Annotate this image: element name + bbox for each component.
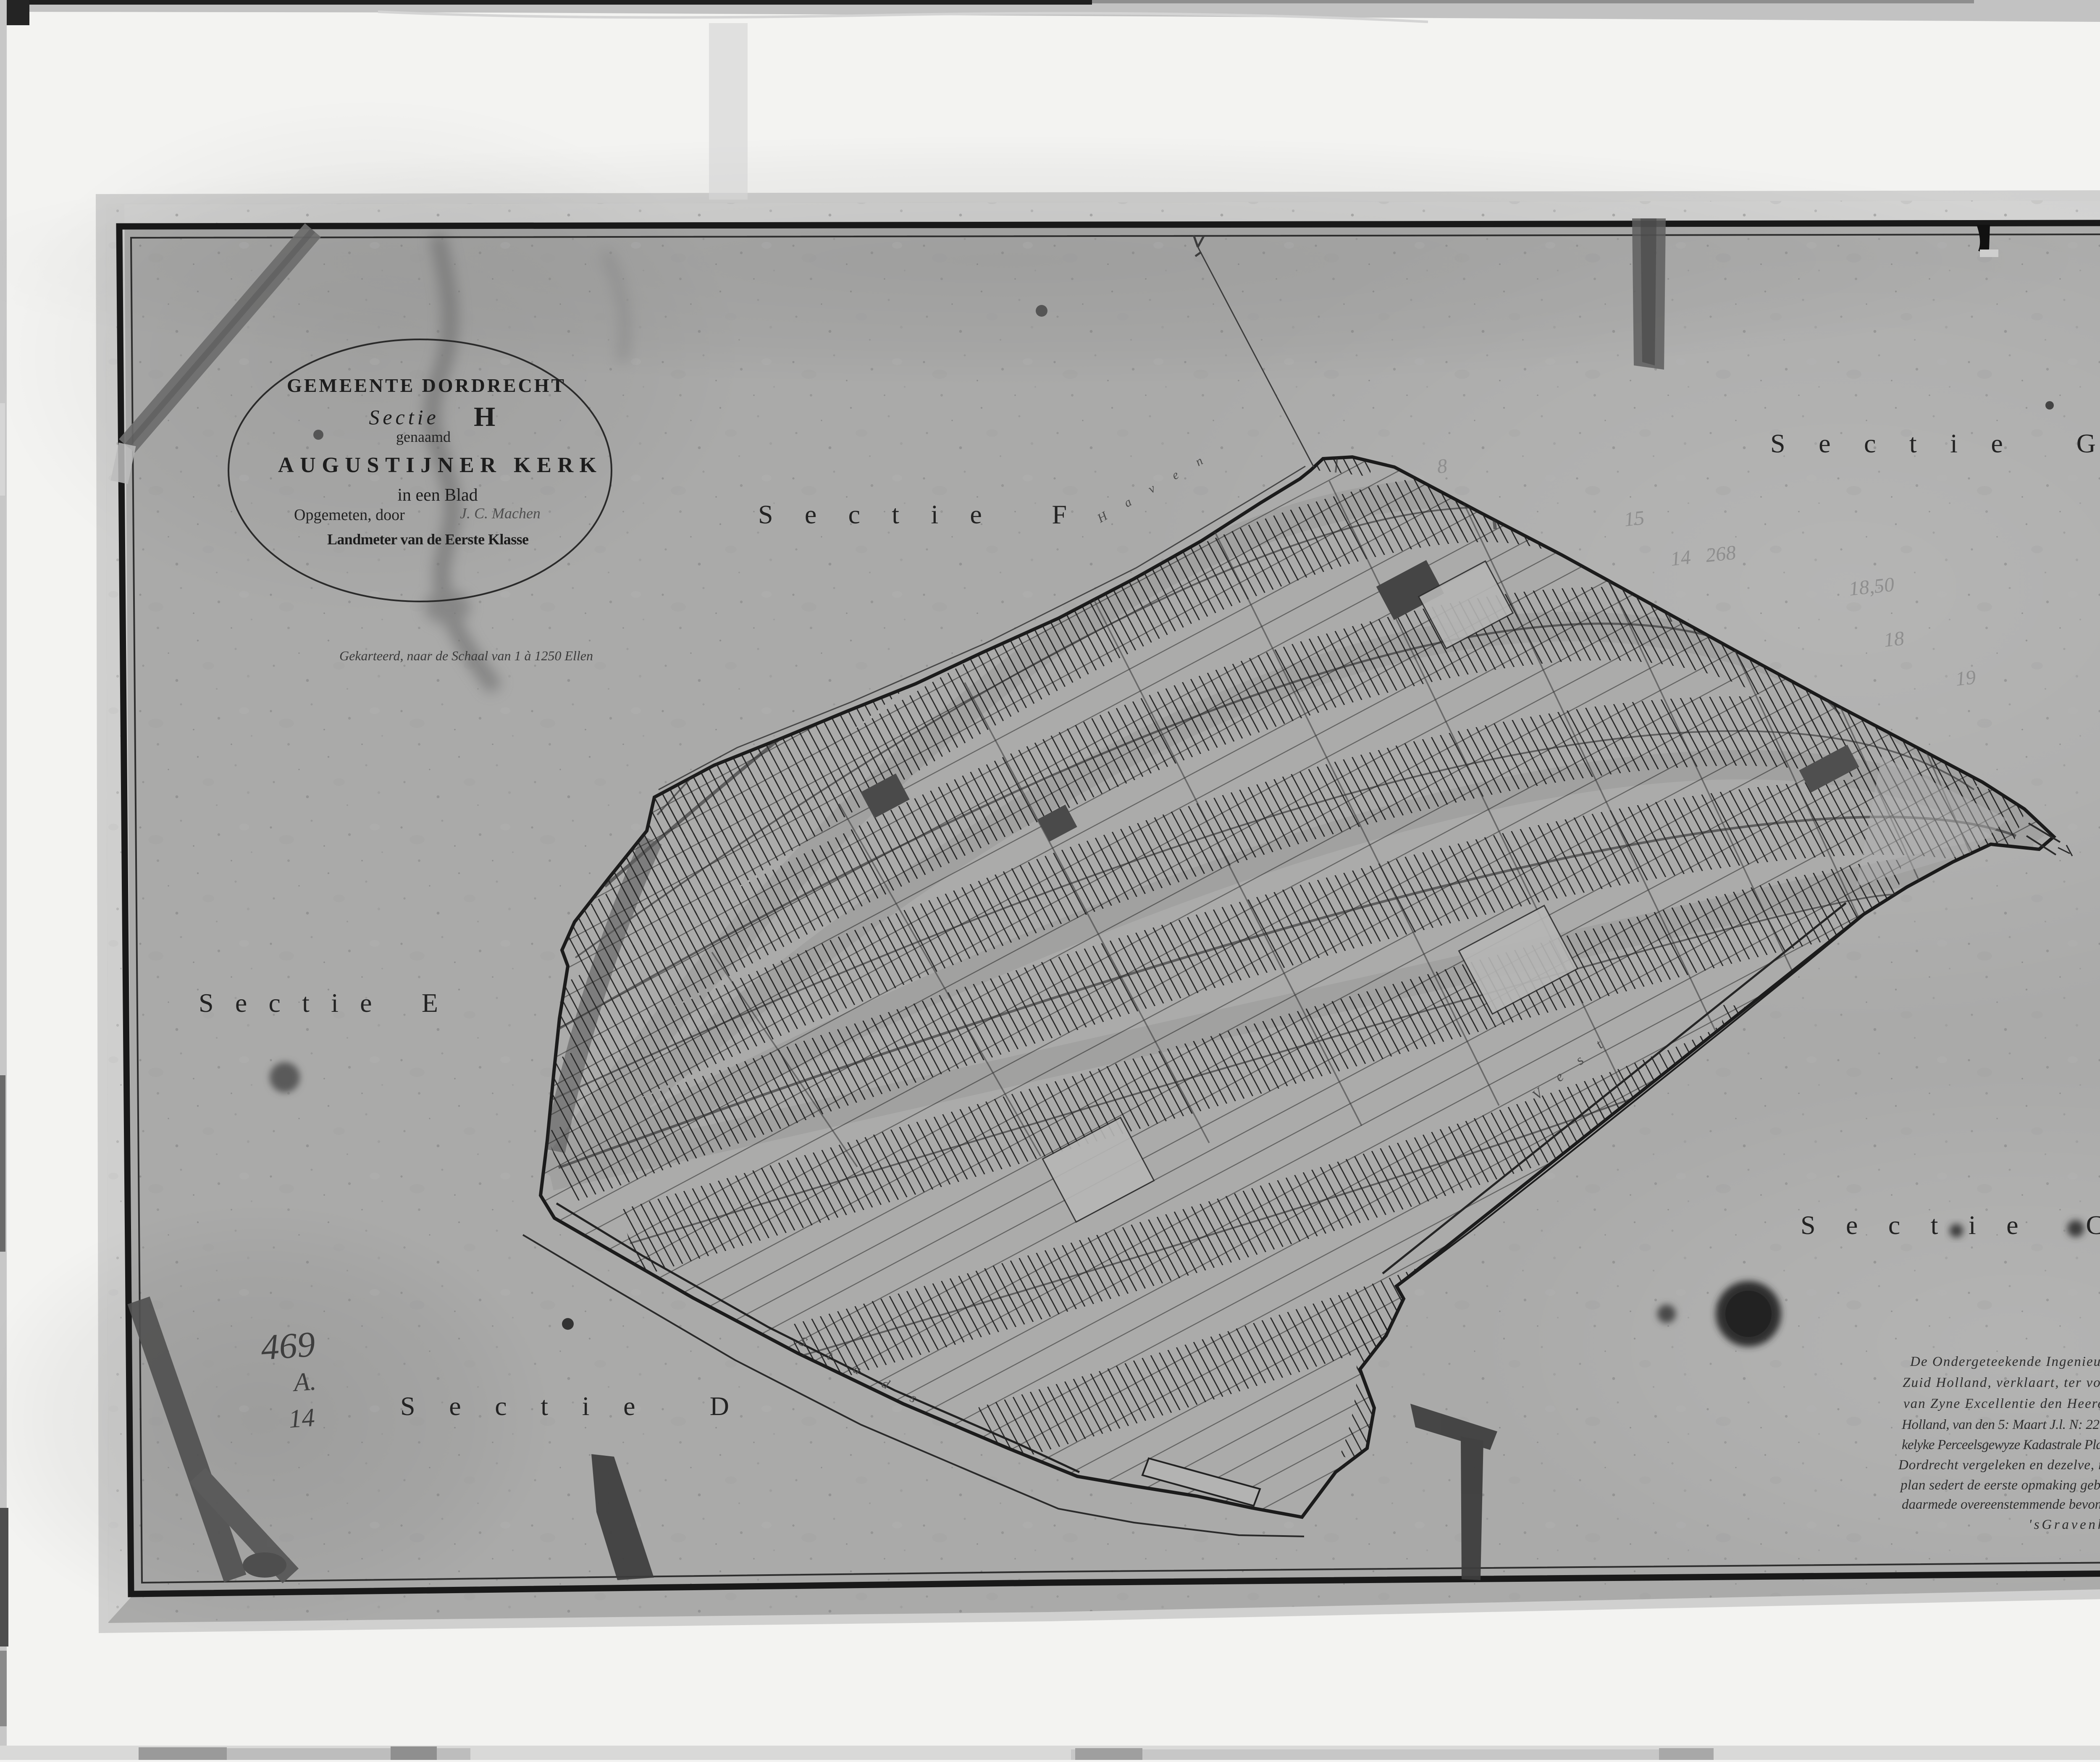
svg-text:AUGUSTIJNER KERK: AUGUSTIJNER KERK bbox=[278, 453, 597, 477]
svg-text:van Zyne Excellentie den Heere: van Zyne Excellentie den Heere Staatsraa… bbox=[1903, 1396, 2100, 1411]
svg-text:in een Blad: in een Blad bbox=[397, 486, 478, 505]
svg-text:Holland, van den 5: Maart J.l.: Holland, van den 5: Maart J.l. N: 221/36… bbox=[1901, 1417, 2100, 1432]
svg-text:Gekarteerd, naar de Schaal van: Gekarteerd, naar de Schaal van 1 à 1250 … bbox=[339, 648, 593, 663]
svg-text:Sectie: Sectie bbox=[369, 405, 439, 429]
svg-text:De Ondergeteekende Ingenieur V: De Ondergeteekende Ingenieur Verificateu… bbox=[1910, 1354, 2100, 1369]
svg-text:Dordrecht vergeleken en dezelv: Dordrecht vergeleken en dezelve, met uit… bbox=[1898, 1457, 2100, 1473]
svg-text:GEMEENTE DORDRECHT: GEMEENTE DORDRECHT bbox=[287, 375, 564, 396]
svg-text:Landmeter van de Eerste Klasse: Landmeter van de Eerste Klasse bbox=[327, 531, 529, 548]
svg-text:15: 15 bbox=[1623, 507, 1646, 531]
svg-text:14: 14 bbox=[288, 1403, 316, 1434]
svg-text:Zuid Holland, verklaart, ter v: Zuid Holland, verklaart, ter voldoening … bbox=[1903, 1375, 2100, 1390]
svg-text:plan sedert de eerste opmaking: plan sedert de eerste opmaking gebragte … bbox=[1900, 1478, 2100, 1493]
svg-text:A.: A. bbox=[291, 1367, 317, 1397]
svg-text:J. C. Machen: J. C. Machen bbox=[460, 505, 541, 522]
svg-text:18: 18 bbox=[1883, 627, 1905, 651]
svg-text:kelyke Perceelsgewyze Kadastra: kelyke Perceelsgewyze Kadastrale Plan va… bbox=[1902, 1437, 2100, 1452]
svg-text:Opgemeten, door: Opgemeten, door bbox=[294, 506, 405, 524]
svg-text:469: 469 bbox=[260, 1323, 316, 1368]
svg-text:daarmede overeenstemmende bevo: daarmede overeenstemmende bevonden te he… bbox=[1902, 1497, 2100, 1512]
svg-text:H: H bbox=[474, 402, 495, 432]
svg-text:18,50: 18,50 bbox=[1848, 573, 1895, 600]
svg-text:19: 19 bbox=[1955, 666, 1977, 691]
svg-text:'sGravenhage den 2: April 1832: 'sGravenhage den 2: April 1832 bbox=[2029, 1517, 2100, 1532]
svg-text:genaamd: genaamd bbox=[396, 428, 451, 445]
